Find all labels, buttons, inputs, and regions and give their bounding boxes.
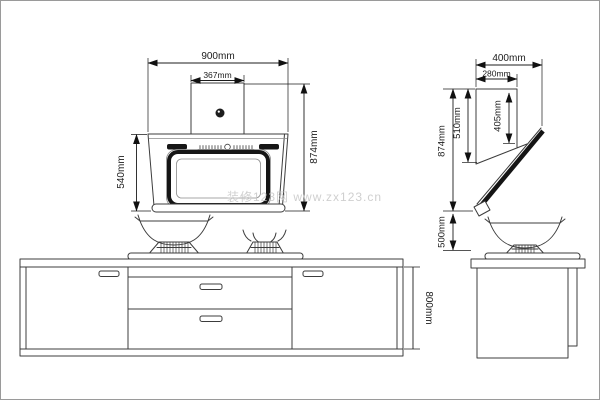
left-door-handle [99,271,119,277]
base-cabinet-front [20,259,403,356]
countertop-side [471,259,585,268]
side-panel-length-label: 405mm [493,100,504,132]
hood-bottom-lip [152,204,285,212]
dim-side-body-height: 510mm [452,89,477,163]
dim-cabinet-height: 800mm [404,267,434,349]
front-total-width-label: 900mm [201,51,234,62]
wok-side [485,217,565,248]
side-total-depth-label: 400mm [492,53,525,64]
dim-front-duct-width: 367mm [191,70,244,82]
cabinet-back-strip [568,268,577,346]
chimney-duct-front [191,83,244,134]
technical-drawing-range-hood-installation: 900mm 367mm 540mm 874mm [0,0,600,400]
front-body-height-label: 540mm [116,155,127,188]
burner-stand-left [148,242,200,253]
side-duct-depth-label: 280mm [482,69,510,79]
side-total-height-label: 874mm [437,125,448,157]
hood-clearance-label: 500mm [437,216,448,248]
hood-profile-side [474,89,543,216]
base-cabinet-side [471,253,585,358]
vent-slot-right [259,144,279,150]
side-view: 400mm 280mm 405mm 510mm 874mm [437,53,586,358]
diagram-canvas: 900mm 367mm 540mm 874mm [1,1,600,400]
power-button-icon [225,144,231,150]
front-duct-width-label: 367mm [203,70,231,80]
right-door-handle [303,271,323,277]
slanted-glass-panel-side [479,131,543,208]
drawer-2-handle [200,316,222,322]
cabinet-outline [20,259,403,356]
cooktop-front [128,215,303,260]
burner-grate-right [243,230,286,253]
dim-front-body-height: 540mm [116,135,151,212]
cabinet-body-side [477,268,568,358]
wok-left [135,215,213,245]
dim-side-panel-length: 405mm [493,93,516,144]
drawer-1-handle [200,284,222,290]
watermark-text: 装修123网 www.zx123.cn [227,189,382,204]
vent-slot-left [167,144,187,150]
brand-logo-icon [216,109,225,118]
front-total-height-label: 874mm [309,130,320,163]
dim-side-duct-depth: 280mm [476,69,517,88]
hood-bottom-lip-side [474,201,490,216]
dim-hood-clearance: 500mm [437,214,472,251]
cabinet-height-label: 800mm [423,291,434,324]
side-body-height-label: 510mm [452,107,463,139]
